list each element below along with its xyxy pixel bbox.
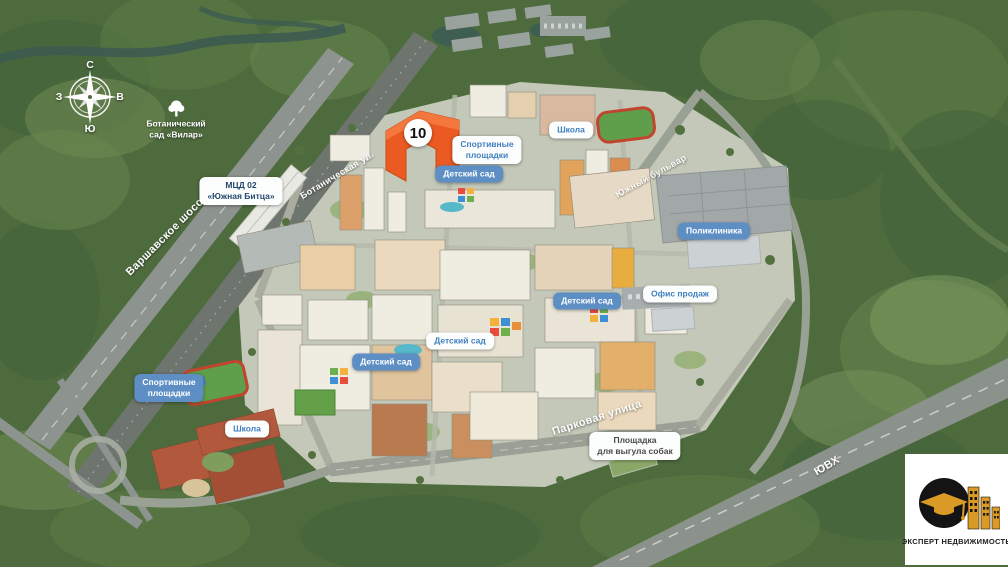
poi-label-line: Спортивные bbox=[142, 377, 195, 388]
compass-east: В bbox=[116, 91, 124, 103]
poi-label-mcd-station[interactable]: МЦД 02 «Южная Битца» bbox=[199, 177, 282, 205]
poi-label-line: «Южная Битца» bbox=[207, 191, 274, 202]
poi-label-line: для выгула собак bbox=[597, 446, 672, 457]
poi-label-line: Детский сад bbox=[443, 168, 495, 179]
poi-label-line: Детский сад bbox=[434, 335, 486, 346]
polyclinic-building bbox=[687, 236, 761, 269]
poi-label-kindergarten-west[interactable]: Детский сад bbox=[352, 353, 420, 370]
agency-logo-text: ЭКСПЕРТ НЕДВИЖИМОСТЬ bbox=[902, 537, 1008, 546]
poi-label-line: Школа bbox=[233, 423, 261, 434]
poi-label-polyclinic[interactable]: Поликлиника bbox=[678, 222, 750, 239]
poi-label-line: МЦД 02 bbox=[207, 180, 274, 191]
map-canvas bbox=[0, 0, 1008, 567]
poi-label-school-north[interactable]: Школа bbox=[549, 121, 593, 138]
poi-label-line: площадки bbox=[142, 388, 195, 399]
building-10-badge[interactable]: 10 bbox=[404, 119, 432, 147]
agency-logo: ЭКСПЕРТ НЕДВИЖИМОСТЬ bbox=[905, 454, 1008, 565]
sales-office-building bbox=[651, 307, 694, 332]
poi-label-line: Детский сад bbox=[360, 356, 412, 367]
poi-label-line: Площадка bbox=[597, 435, 672, 446]
poi-label-kindergarten-center[interactable]: Детский сад bbox=[426, 332, 494, 349]
poi-label-line: площадки bbox=[460, 150, 513, 161]
poi-label-sports-grounds-north[interactable]: Спортивные площадки bbox=[452, 136, 521, 164]
compass-south: Ю bbox=[85, 123, 96, 135]
compass-rose: С Ю В З bbox=[52, 58, 128, 136]
poi-label-kindergarten-north[interactable]: Детский сад bbox=[435, 165, 503, 182]
agency-logo-mark bbox=[914, 473, 1000, 535]
poi-label-line: Поликлиника bbox=[686, 225, 742, 236]
masterplan-aerial-view: С Ю В З 10 Ботанический сад «Вилар» МЦД … bbox=[0, 0, 1008, 567]
poi-label-botanical-garden: Ботанический сад «Вилар» bbox=[146, 99, 205, 140]
poi-label-line: Школа bbox=[557, 124, 585, 135]
tree-icon bbox=[167, 99, 185, 117]
poi-label-line: Детский сад bbox=[561, 295, 613, 306]
poi-label-dog-walking-area[interactable]: Площадка для выгула собак bbox=[589, 432, 680, 460]
poi-label-kindergarten-east[interactable]: Детский сад bbox=[553, 292, 621, 309]
poi-label-school-south[interactable]: Школа bbox=[225, 420, 269, 437]
sports-field-north bbox=[596, 107, 655, 144]
compass-west: З bbox=[56, 91, 63, 103]
poi-label-line: Спортивные bbox=[460, 139, 513, 150]
compass-north: С bbox=[86, 59, 94, 71]
poi-label-line: Ботанический bbox=[146, 118, 205, 129]
poi-label-line: сад «Вилар» bbox=[146, 130, 205, 141]
poi-label-sales-office[interactable]: Офис продаж bbox=[643, 285, 717, 302]
poi-label-sports-grounds-south[interactable]: Спортивные площадки bbox=[134, 374, 203, 402]
poi-label-line: Офис продаж bbox=[651, 288, 709, 299]
football-pitch bbox=[295, 390, 335, 415]
